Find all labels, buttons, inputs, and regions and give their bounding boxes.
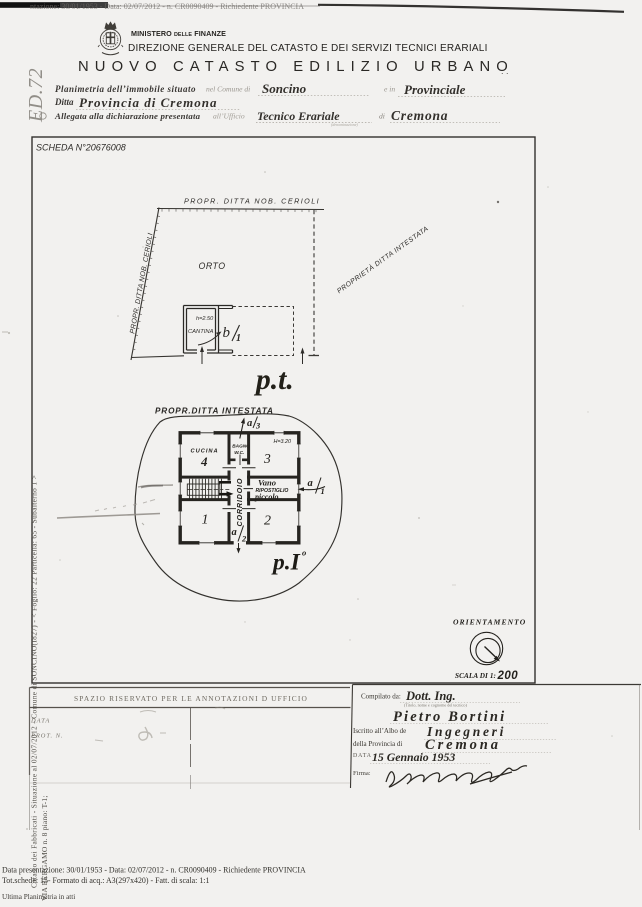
svg-text:a: a [308,478,313,489]
svg-text:Allegata alla dichiarazione pr: Allegata alla dichiarazione presentata [54,111,201,121]
svg-text:NUOVO CATASTO EDILIZIO URBANO: NUOVO CATASTO EDILIZIO URBANO [78,59,514,75]
svg-text:della Provincia di: della Provincia di [353,740,402,748]
svg-text:piccolo: piccolo [254,493,279,502]
svg-text:BAGNO: BAGNO [232,444,250,449]
svg-text:nel Comune di: nel Comune di [206,85,250,94]
svg-text:Provincia di Cremona: Provincia di Cremona [79,95,217,110]
svg-text:200: 200 [497,670,519,682]
svg-text:SCHEDA N°20676008: SCHEDA N°20676008 [36,143,126,153]
svg-text:VIA BERGAMO n. 8 piano: T-1;: VIA BERGAMO n. 8 piano: T-1; [40,795,49,901]
svg-text:Vano: Vano [258,478,276,488]
svg-text:Cremona: Cremona [391,108,448,123]
svg-text:a: a [247,418,252,429]
svg-text:W.C.: W.C. [234,450,244,455]
svg-text:SCALA DI 1:: SCALA DI 1: [455,672,496,680]
svg-text:Planimetria dell’immobile situ: Planimetria dell’immobile situato [55,84,196,94]
svg-text:Catasto dei Fabbricati - Situa: Catasto dei Fabbricati - Situazione al 0… [30,475,39,888]
svg-text:3: 3 [263,451,271,466]
svg-text:all’Ufficio: all’Ufficio [213,112,245,121]
svg-text:2: 2 [264,514,271,529]
svg-text:a: a [232,527,237,538]
svg-text:ORIENTAMENTO: ORIENTAMENTO [453,618,526,627]
svg-text:PROPR.DITTA INTESTATA: PROPR.DITTA INTESTATA [155,407,274,416]
svg-text:15 Gennaio 1953: 15 Gennaio 1953 [372,750,455,764]
svg-text:CORRIDOIO: CORRIDOIO [235,478,244,527]
svg-text:ED.72: ED.72 [25,68,47,123]
svg-text:o: o [302,548,306,558]
svg-text:2: 2 [241,534,247,544]
svg-text:Dott. Ing.: Dott. Ing. [405,689,456,703]
svg-text:Ditta: Ditta [54,97,74,107]
svg-text:1: 1 [236,333,241,344]
svg-text:. .: . . [501,66,509,76]
svg-text:di: di [379,112,385,121]
svg-text:PROPR. DITTA NOB. CERIOLI: PROPR. DITTA NOB. CERIOLI [184,197,320,206]
svg-text:p.t.: p.t. [253,364,294,396]
svg-text:Ultima Planimetria in atti: Ultima Planimetria in atti [2,893,75,901]
svg-text:Data presentazione: 30/01/1953: Data presentazione: 30/01/1953 - Data: 0… [2,866,306,875]
svg-text:h=2.50: h=2.50 [196,316,214,322]
svg-text:SPAZIO RISERVATO PER LE ANNOTA: SPAZIO RISERVATO PER LE ANNOTAZIONI D UF… [74,694,308,703]
svg-text:Soncino: Soncino [262,81,307,96]
svg-text:Provinciale: Provinciale [404,82,466,97]
svg-text:b: b [223,325,231,341]
svg-text:DIREZIONE GENERALE DEL CATASTO: DIREZIONE GENERALE DEL CATASTO E DEI SER… [128,43,488,54]
svg-text:ORTO: ORTO [199,261,226,271]
svg-text:CANTINA: CANTINA [188,329,214,335]
svg-text:Iscritto all’Albo de: Iscritto all’Albo de [353,727,406,735]
svg-text:p.I: p.I [271,550,301,576]
svg-text:3: 3 [255,421,261,431]
svg-text:Tot.schede: 15- Formato di acq: Tot.schede: 15- Formato di acq.: A3(297x… [2,876,209,885]
svg-text:Pietro Bortini: Pietro Bortini [393,709,506,725]
svg-text:Compilato da:: Compilato da: [361,693,401,701]
svg-text:1: 1 [321,486,325,496]
svg-text:Tecnico Erariale: Tecnico Erariale [257,109,340,123]
svg-text:1: 1 [202,513,209,528]
svg-text:e in: e in [384,85,395,94]
svg-text:4: 4 [200,454,208,469]
svg-text:(denominazione): (denominazione) [331,122,359,127]
svg-text:H=3.20: H=3.20 [274,439,292,445]
svg-text:Firma:: Firma: [353,770,371,777]
svg-text:DATA: DATA [353,753,372,759]
